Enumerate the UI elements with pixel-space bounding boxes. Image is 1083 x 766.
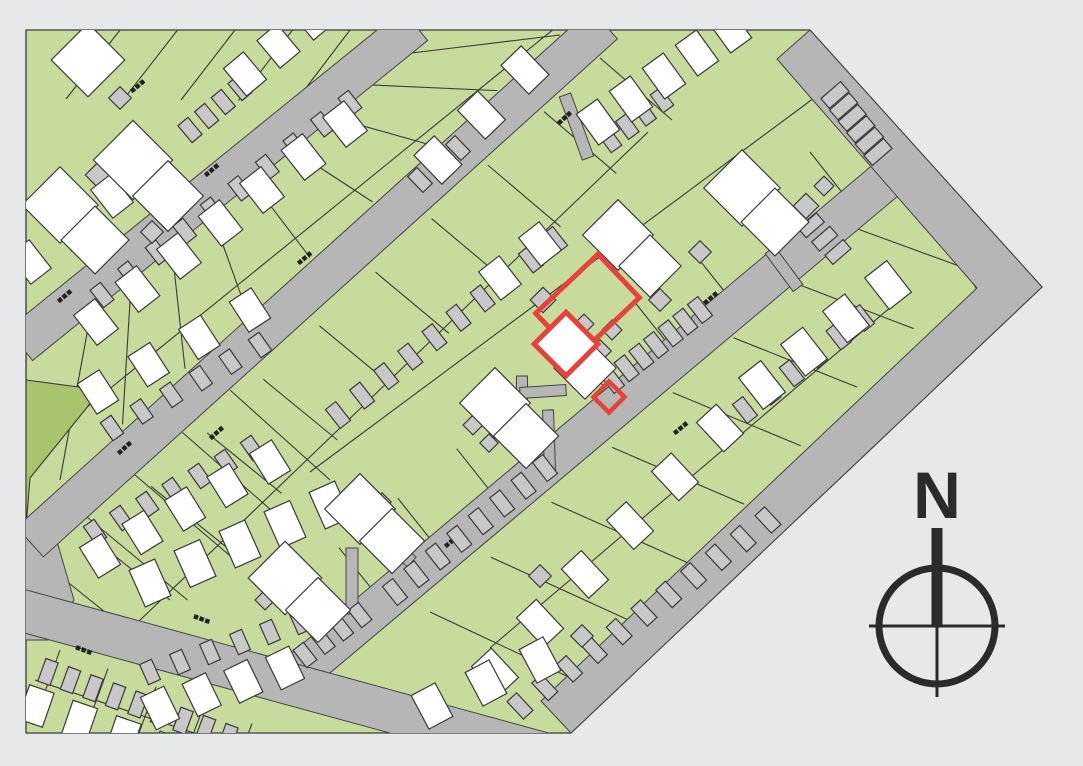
terraced-house: [192, 747, 228, 766]
north-label: N: [913, 458, 961, 532]
site-plan-page: N: [0, 0, 1083, 766]
terraced-house: [148, 731, 184, 766]
north-compass: N: [852, 448, 1027, 733]
north-arrow-icon: [869, 528, 1005, 697]
